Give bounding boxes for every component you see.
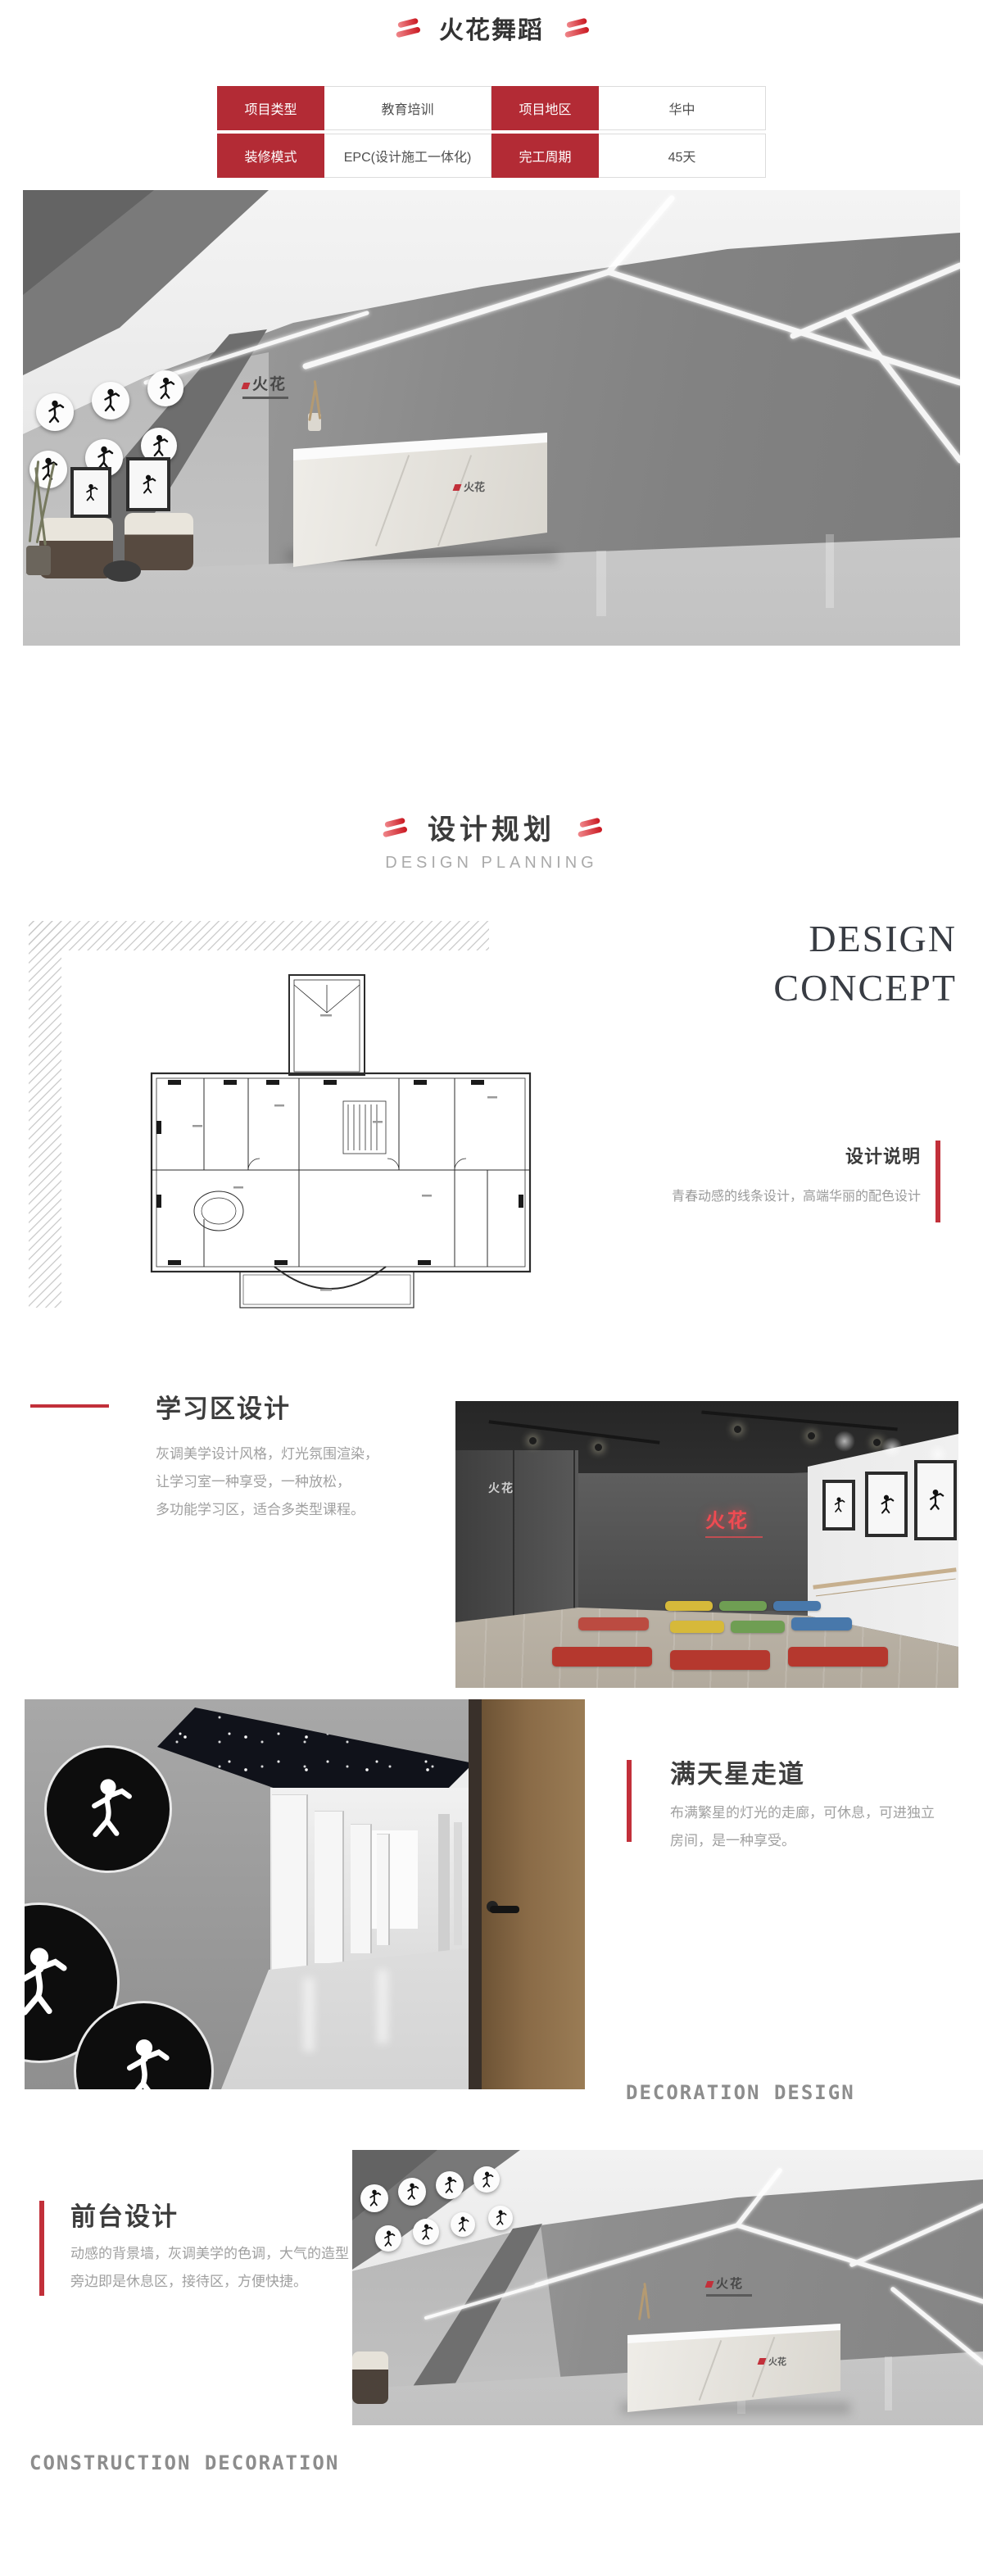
reception-desk: 火花	[627, 2320, 840, 2412]
corridor-text: 布满繁星的灯光的走廊，可休息，可进独立 房间，是一种享受。	[670, 1799, 935, 1855]
wall-disc	[375, 2225, 401, 2252]
wood-door-grain	[482, 1699, 585, 2089]
plan-fixtures	[156, 1080, 523, 1265]
floor-reflection	[377, 1970, 388, 2043]
wall-art-frame	[126, 457, 170, 511]
wall-disc	[92, 382, 129, 420]
frontdesk-image: 火花 火花	[352, 2150, 983, 2425]
dancer-icon	[83, 1777, 134, 1841]
studio-back-wall	[578, 1473, 808, 1611]
design-note: 设计说明 青春动感的线条设计，高端华丽的配色设计	[672, 1141, 940, 1222]
dancer-icon	[494, 2210, 507, 2226]
ceiling-glow	[834, 1431, 855, 1452]
wall-disc	[473, 2166, 500, 2193]
desk-logo: 火花	[759, 2355, 786, 2368]
wall-brand-logo: 火花	[706, 2274, 752, 2297]
spotlight	[873, 1439, 881, 1446]
ceiling-glow	[881, 1437, 903, 1458]
plan-labels	[193, 1014, 497, 1291]
lounge-chair	[352, 2352, 388, 2404]
wall-brand-logo: 火花	[242, 372, 288, 399]
spotlight	[734, 1426, 741, 1433]
design-concept-title: DESIGN CONCEPT	[773, 914, 957, 1013]
wall-disc	[436, 2171, 464, 2199]
decoration-design-caption: DECORATION DESIGN	[626, 2081, 855, 2104]
dancer-icon	[117, 2038, 171, 2090]
dancer-icon	[150, 434, 169, 458]
door-handle	[490, 1906, 519, 1913]
spotlight	[529, 1437, 537, 1444]
corridor-right-frame	[438, 1814, 450, 1953]
corridor-door	[272, 1794, 308, 1973]
floor-reflection	[303, 1978, 315, 2052]
wall-disc	[413, 2219, 439, 2245]
page-title: 火花舞蹈	[439, 10, 544, 46]
decoration-mode-value: EPC(设计施工一体化)	[324, 134, 491, 178]
yoga-mat	[788, 1647, 888, 1667]
dance-poster	[914, 1460, 957, 1540]
spark-icon	[453, 484, 462, 491]
design-note-title: 设计说明	[672, 1142, 921, 1168]
plan-walls	[152, 975, 530, 1308]
wall-disc	[36, 393, 74, 431]
wall-circle-art	[44, 1745, 172, 1873]
spotlight	[808, 1432, 815, 1440]
title-mark-right-icon	[562, 18, 589, 39]
learning-area-text: 灰调美学设计风格，灯光氛围渲染， 让学习室一种享受，一种放松， 多功能学习区，适…	[156, 1440, 378, 1524]
decoration-mode-label: 装修模式	[217, 134, 324, 178]
title-mark-right-icon	[575, 817, 602, 837]
learning-area-image: 火花 火花	[455, 1401, 958, 1688]
floor-plant	[25, 460, 54, 575]
dance-poster	[865, 1472, 908, 1537]
dancer-icon	[367, 2189, 382, 2207]
table-row: 项目类型 教育培训 项目地区 华中	[217, 86, 766, 130]
wood-door-frame	[469, 1699, 482, 2089]
yoga-mat	[719, 1601, 767, 1611]
completion-period-value: 45天	[599, 134, 766, 178]
project-region-label: 项目地区	[491, 86, 599, 130]
corridor-end-light	[369, 1830, 418, 1929]
title-mark-left-icon	[393, 18, 420, 39]
dance-poster	[822, 1480, 855, 1531]
page: 火花舞蹈 项目类型 教育培训 项目地区 华中 装修模式 EPC(设计施工一体化)…	[0, 0, 983, 2576]
yoga-mat	[773, 1601, 821, 1611]
dancer-icon	[456, 2216, 469, 2233]
completion-period-label: 完工周期	[491, 134, 599, 178]
page-header: 火花舞蹈	[0, 10, 983, 46]
desk-logo: 火花	[454, 478, 485, 494]
learning-area-title: 学习区设计	[156, 1388, 291, 1425]
dancer-icon	[156, 377, 175, 401]
dancer-icon	[832, 1497, 845, 1513]
corridor-right-frame	[454, 1822, 462, 1945]
yoga-mat	[791, 1617, 852, 1630]
lounge-chair	[125, 513, 193, 570]
construction-decoration-caption: CONSTRUCTION DECORATION	[29, 2451, 339, 2474]
dancer-icon	[878, 1494, 895, 1515]
dancer-icon	[442, 2176, 457, 2194]
red-vertical-bar	[39, 2201, 44, 2296]
yoga-mat	[670, 1650, 770, 1670]
yoga-mat	[665, 1601, 713, 1611]
hatch-border-left	[29, 921, 61, 1308]
dancer-icon	[405, 2183, 419, 2201]
spark-icon	[758, 2358, 767, 2365]
design-planning-section-header: 设计规划 DESIGN PLANNING	[0, 807, 983, 873]
dancer-icon	[140, 474, 156, 495]
logo-tagline-bar	[705, 1536, 763, 1538]
yoga-mat	[670, 1621, 724, 1633]
logo-tagline-bar	[242, 397, 288, 399]
dancer-icon	[101, 388, 120, 413]
wall-disc	[451, 2212, 475, 2237]
corridor-door	[315, 1811, 344, 1963]
dancer-icon	[926, 1489, 944, 1512]
studio-red-logo: 火花	[705, 1504, 763, 1538]
project-type-value: 教育培训	[324, 86, 491, 130]
dancer-icon	[419, 2224, 433, 2241]
yoga-mat	[552, 1647, 652, 1667]
logo-tagline-bar	[706, 2294, 752, 2297]
red-vertical-bar	[935, 1141, 940, 1222]
project-info-table: 项目类型 教育培训 项目地区 华中 装修模式 EPC(设计施工一体化) 完工周期…	[217, 86, 766, 181]
corridor-image	[25, 1699, 585, 2089]
section-subtitle: DESIGN PLANNING	[0, 854, 983, 873]
red-horizontal-line	[30, 1404, 109, 1408]
yoga-mat	[578, 1617, 649, 1630]
design-note-text: 青春动感的线条设计，高端华丽的配色设计	[672, 1185, 921, 1204]
corridor-title: 满天星走道	[670, 1753, 805, 1790]
mirror-logo: 火花	[488, 1480, 514, 1496]
spark-icon	[705, 2281, 714, 2288]
title-mark-left-icon	[380, 817, 407, 837]
floor-plan-drawing	[29, 916, 537, 1313]
spotlight	[595, 1444, 602, 1451]
hero-light-lines	[23, 190, 960, 646]
frontdesk-text: 动感的背景墙，灰调美学的色调，大气的造型 旁边即是休息区，接待区，方便快捷。	[70, 2240, 349, 2296]
red-vertical-bar	[627, 1760, 632, 1842]
reception-desk: 火花	[293, 428, 547, 567]
wall-disc	[398, 2178, 426, 2206]
studio-mirror-wall	[455, 1450, 578, 1624]
dancer-icon	[382, 2230, 396, 2247]
wall-art-frame	[70, 467, 111, 518]
table-row: 装修模式 EPC(设计施工一体化) 完工周期 45天	[217, 134, 766, 178]
corridor-door	[351, 1824, 372, 1953]
yoga-mat	[731, 1621, 785, 1633]
dancer-icon	[25, 1946, 69, 2020]
plant-pot	[26, 546, 51, 575]
hero-reception-image: 火花 火花	[23, 190, 960, 646]
frontdesk-title: 前台设计	[70, 2196, 179, 2233]
section-title: 设计规划	[428, 807, 555, 847]
dancer-icon	[45, 400, 65, 424]
wall-disc	[488, 2206, 513, 2230]
dancer-icon	[480, 2171, 494, 2188]
corridor-door	[377, 1834, 390, 1945]
dancer-icon	[84, 483, 98, 502]
wall-disc	[360, 2184, 388, 2212]
coffee-table	[103, 560, 141, 582]
project-type-label: 项目类型	[217, 86, 324, 130]
wall-disc	[147, 370, 183, 406]
spark-icon	[242, 383, 251, 389]
project-region-value: 华中	[599, 86, 766, 130]
hatch-border-top	[29, 921, 489, 950]
